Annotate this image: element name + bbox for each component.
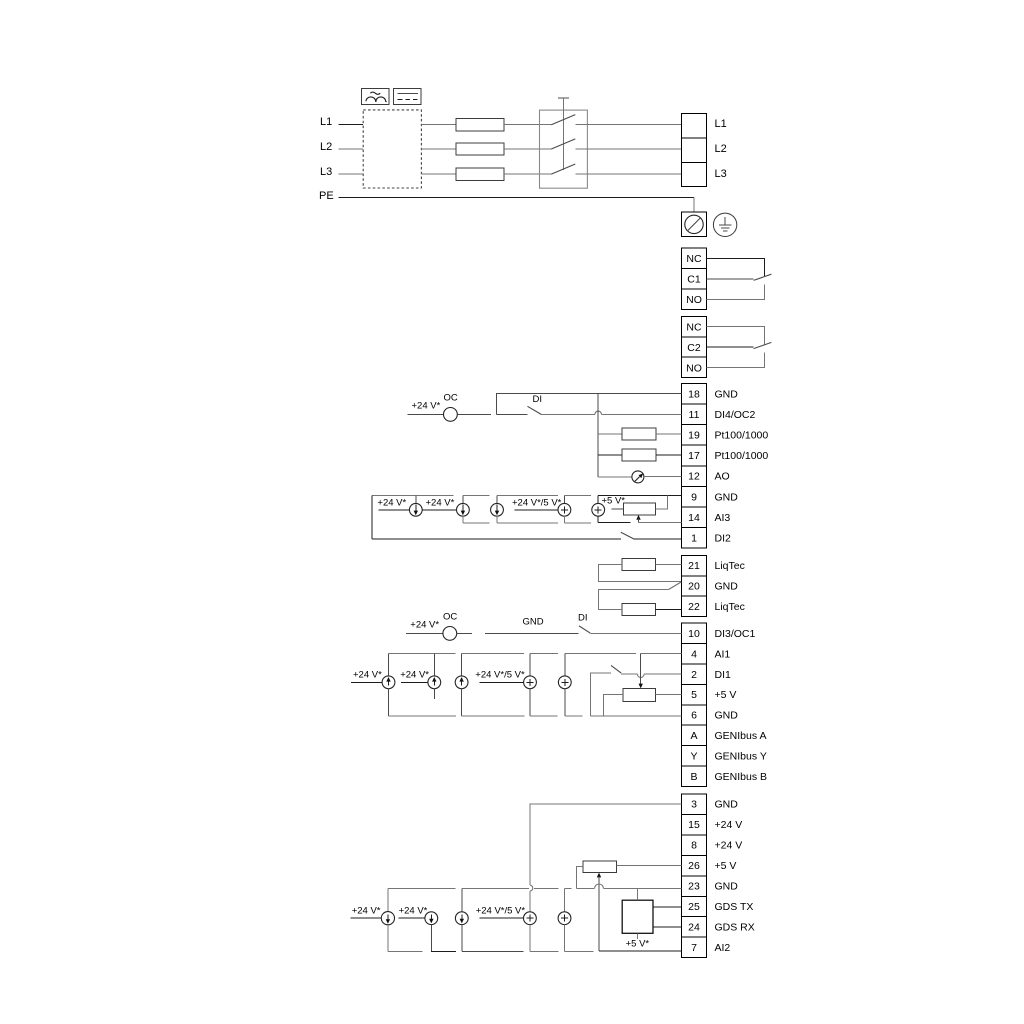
svg-text:+24 V: +24 V (715, 840, 743, 852)
svg-text:3: 3 (691, 799, 697, 811)
svg-text:+24 V*/5 V*: +24 V*/5 V* (512, 498, 562, 509)
svg-text:AI2: AI2 (715, 942, 731, 954)
svg-text:+5 V*: +5 V* (626, 939, 650, 950)
svg-text:25: 25 (688, 901, 700, 913)
svg-text:10: 10 (688, 628, 700, 640)
svg-text:Y: Y (690, 750, 697, 762)
svg-text:5: 5 (691, 689, 697, 701)
svg-text:DI1: DI1 (715, 669, 732, 681)
svg-text:+24 V*/5 V*: +24 V*/5 V* (475, 670, 525, 681)
svg-text:7: 7 (691, 942, 697, 954)
svg-text:C1: C1 (687, 274, 701, 286)
svg-text:+5 V: +5 V (715, 689, 737, 701)
svg-text:PE: PE (319, 190, 334, 202)
svg-text:GDS RX: GDS RX (715, 922, 755, 934)
svg-text:NO: NO (686, 362, 702, 374)
svg-text:L3: L3 (320, 166, 332, 178)
svg-text:GND: GND (715, 799, 739, 811)
svg-text:+5 V*: +5 V* (602, 496, 626, 507)
svg-text:GENIbus A: GENIbus A (715, 730, 767, 742)
svg-text:OC: OC (443, 612, 457, 623)
svg-text:6: 6 (691, 710, 697, 722)
svg-text:+24 V*: +24 V* (426, 498, 455, 509)
svg-text:2: 2 (691, 669, 697, 681)
svg-text:+24 V: +24 V (715, 819, 743, 831)
svg-text:+24 V*: +24 V* (410, 620, 439, 631)
svg-text:OC: OC (444, 393, 458, 404)
svg-text:DI3/OC1: DI3/OC1 (715, 628, 756, 640)
svg-text:+5 V: +5 V (715, 860, 737, 872)
svg-text:NC: NC (686, 253, 702, 265)
svg-text:+24 V*: +24 V* (353, 670, 382, 681)
svg-text:L3: L3 (715, 168, 727, 180)
svg-text:20: 20 (688, 581, 700, 593)
svg-text:DI: DI (533, 394, 543, 405)
svg-text:18: 18 (688, 388, 700, 400)
svg-text:19: 19 (688, 430, 700, 442)
svg-text:GND: GND (715, 710, 739, 722)
svg-text:12: 12 (688, 471, 700, 483)
svg-text:NC: NC (686, 321, 702, 333)
svg-text:GND: GND (715, 581, 739, 593)
svg-text:NO: NO (686, 294, 702, 306)
svg-text:L2: L2 (715, 143, 727, 155)
svg-text:LiqTec: LiqTec (715, 560, 745, 572)
svg-text:+24 V*: +24 V* (399, 905, 428, 916)
svg-text:GND: GND (523, 617, 544, 628)
svg-text:4: 4 (691, 648, 697, 660)
svg-text:DI2: DI2 (715, 533, 732, 545)
svg-text:21: 21 (688, 560, 700, 572)
svg-text:22: 22 (688, 601, 700, 613)
svg-text:GND: GND (715, 491, 739, 503)
svg-text:+24 V*: +24 V* (400, 670, 429, 681)
svg-text:+24 V*: +24 V* (412, 401, 441, 412)
svg-text:DI: DI (578, 613, 588, 624)
svg-text:1: 1 (691, 533, 697, 545)
svg-text:17: 17 (688, 450, 700, 462)
svg-text:Pt100/1000: Pt100/1000 (715, 450, 769, 462)
svg-text:LiqTec: LiqTec (715, 601, 745, 613)
svg-text:B: B (690, 771, 697, 783)
svg-text:26: 26 (688, 860, 700, 872)
svg-text:AO: AO (715, 471, 730, 483)
svg-text:A: A (690, 730, 697, 742)
svg-text:+24 V*: +24 V* (377, 498, 406, 509)
svg-text:GENIbus Y: GENIbus Y (715, 750, 767, 762)
svg-text:Pt100/1000: Pt100/1000 (715, 430, 769, 442)
svg-text:L1: L1 (320, 116, 332, 128)
svg-text:AI1: AI1 (715, 648, 731, 660)
svg-text:15: 15 (688, 819, 700, 831)
svg-text:GENIbus B: GENIbus B (715, 771, 768, 783)
svg-text:11: 11 (689, 409, 700, 421)
svg-text:23: 23 (688, 881, 700, 893)
svg-text:+24 V*: +24 V* (352, 905, 381, 916)
svg-text:DI4/OC2: DI4/OC2 (715, 409, 756, 421)
svg-text:GDS TX: GDS TX (715, 901, 754, 913)
svg-text:L2: L2 (320, 141, 332, 153)
svg-text:GND: GND (715, 881, 739, 893)
svg-text:9: 9 (691, 491, 697, 503)
svg-text:24: 24 (688, 922, 700, 934)
svg-text:L1: L1 (715, 118, 727, 130)
svg-text:8: 8 (691, 840, 697, 852)
svg-text:C2: C2 (687, 342, 701, 354)
svg-text:GND: GND (715, 388, 739, 400)
svg-text:+24 V*/5 V*: +24 V*/5 V* (476, 905, 526, 916)
svg-text:AI3: AI3 (715, 512, 731, 524)
svg-text:14: 14 (688, 512, 700, 524)
